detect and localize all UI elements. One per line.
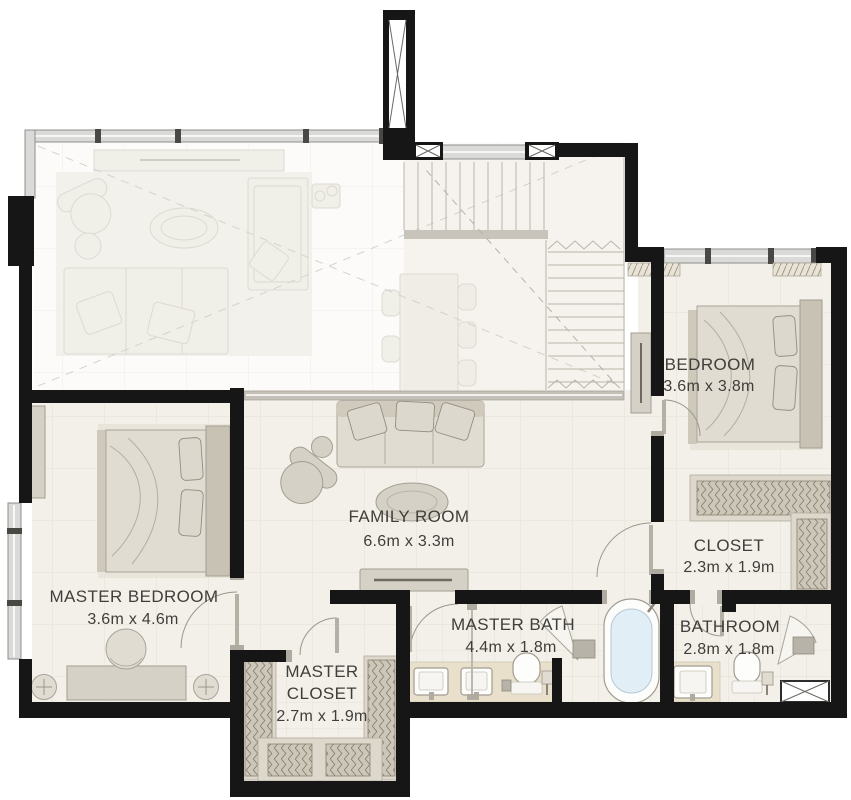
jamb-mark xyxy=(690,590,695,604)
master-bath-dims: 4.4m x 1.8m xyxy=(465,639,556,656)
wall-segment xyxy=(383,143,417,160)
master-bedroom-dims: 3.6m x 4.6m xyxy=(87,611,178,628)
shower-head-box xyxy=(793,637,814,654)
family-room-dims: 6.6m x 3.3m xyxy=(363,533,454,550)
stool-below xyxy=(75,233,101,259)
dining-chair xyxy=(382,290,400,316)
side-table xyxy=(312,437,333,458)
master-closet-label-line2: CLOSET xyxy=(287,684,357,703)
shower-head-box xyxy=(573,640,595,658)
wall-segment xyxy=(625,143,638,260)
toilet-roll-holder xyxy=(502,680,511,691)
master-bath-toilet-tank xyxy=(511,682,542,694)
master-bedroom-label: MASTER BEDROOM xyxy=(49,587,218,606)
closet-label: CLOSET xyxy=(694,536,764,555)
dining-chair xyxy=(458,360,476,386)
bedroom-bed-bench xyxy=(688,310,697,444)
bedroom-dims: 3.6m x 3.8m xyxy=(663,378,754,395)
master-bed-bench xyxy=(97,430,106,572)
wall-segment xyxy=(19,196,32,503)
window-mullion xyxy=(303,129,309,143)
bathroom-toilet-tank xyxy=(732,681,762,693)
dining-chair xyxy=(458,284,476,310)
window-mullion xyxy=(768,248,774,264)
wall-segment xyxy=(32,390,232,403)
wall-segment xyxy=(230,650,244,797)
floor-plan-canvas: BEDROOM 3.6m x 3.8m FAMILY ROOM 6.6m x 3… xyxy=(0,0,851,800)
glass-cap xyxy=(467,604,477,610)
master-bed-pillow xyxy=(179,437,204,480)
window-mullion xyxy=(175,129,181,143)
vanity-stool xyxy=(106,629,146,669)
coffee-table-below xyxy=(150,208,218,248)
sink-basin xyxy=(419,672,443,690)
jamb-mark xyxy=(230,645,244,650)
wall-segment xyxy=(230,388,244,578)
jamb-mark xyxy=(651,569,664,574)
bath-pedestal xyxy=(542,671,553,684)
sink-tap xyxy=(690,694,695,701)
master-bed-pillow xyxy=(178,489,203,536)
wall-segment xyxy=(651,436,664,522)
wall-segment xyxy=(816,247,847,263)
planter xyxy=(32,675,57,700)
void-left-window xyxy=(25,130,35,198)
window-mullion xyxy=(705,248,711,264)
floor-plan-page: BEDROOM 3.6m x 3.8m FAMILY ROOM 6.6m x 3… xyxy=(0,0,851,800)
wall-segment xyxy=(651,574,664,604)
master-bath-toilet-bowl xyxy=(513,653,540,684)
dining-table-below xyxy=(400,274,458,396)
wall-segment xyxy=(408,702,847,718)
wall-segment xyxy=(722,590,831,604)
wall-segment xyxy=(19,659,32,708)
wall-segment xyxy=(330,590,408,604)
family-room-label: FAMILY ROOM xyxy=(349,507,470,526)
wall-segment xyxy=(660,604,674,718)
bathtub xyxy=(604,597,661,704)
window-mullion xyxy=(7,600,22,606)
glass-cap xyxy=(467,694,477,700)
sink-basin xyxy=(466,672,487,690)
jamb-mark xyxy=(651,431,664,436)
planter xyxy=(194,675,219,700)
sill-hatch-pattern xyxy=(773,263,821,276)
sink-basin xyxy=(680,671,706,693)
vanity-desk xyxy=(67,666,186,700)
shaft-box xyxy=(781,681,829,702)
stair-landing-edge xyxy=(404,230,548,239)
master-closet-dims: 2.7m x 1.9m xyxy=(276,708,367,725)
wall-segment xyxy=(455,590,602,604)
bath-pedestal xyxy=(762,672,773,685)
bathtub-water xyxy=(611,609,652,693)
wall-segment xyxy=(722,590,736,612)
jamb-mark xyxy=(286,650,292,662)
wall-segment xyxy=(244,650,286,662)
dining-chair xyxy=(382,336,400,362)
wall-segment xyxy=(396,590,410,797)
window-mullion xyxy=(7,528,22,534)
sink-tap xyxy=(429,692,434,700)
bathroom-label: BATHROOM xyxy=(680,617,780,636)
jamb-mark xyxy=(717,590,722,604)
sofa-pillow xyxy=(395,401,434,432)
wall-segment xyxy=(19,702,244,718)
wall-segment xyxy=(831,247,847,718)
window-mullion xyxy=(95,129,101,143)
bedroom-label: BEDROOM xyxy=(665,355,756,374)
master-bath-label: MASTER BATH xyxy=(451,615,575,634)
wall-segment xyxy=(230,781,410,797)
bedroom-bed-pillow xyxy=(772,365,797,410)
wall-segment xyxy=(552,658,562,704)
bedroom-bed-pillow xyxy=(773,315,798,356)
wall-segment xyxy=(625,247,664,262)
closet-dims: 2.3m x 1.9m xyxy=(683,559,774,576)
wall-segment xyxy=(651,262,664,396)
master-bed-headboard xyxy=(206,426,230,576)
bedroom-bed-headboard xyxy=(800,300,822,448)
jamb-mark xyxy=(602,590,607,604)
bathroom-dims: 2.8m x 1.8m xyxy=(683,641,774,658)
master-closet-label-line1: MASTER xyxy=(285,662,358,681)
